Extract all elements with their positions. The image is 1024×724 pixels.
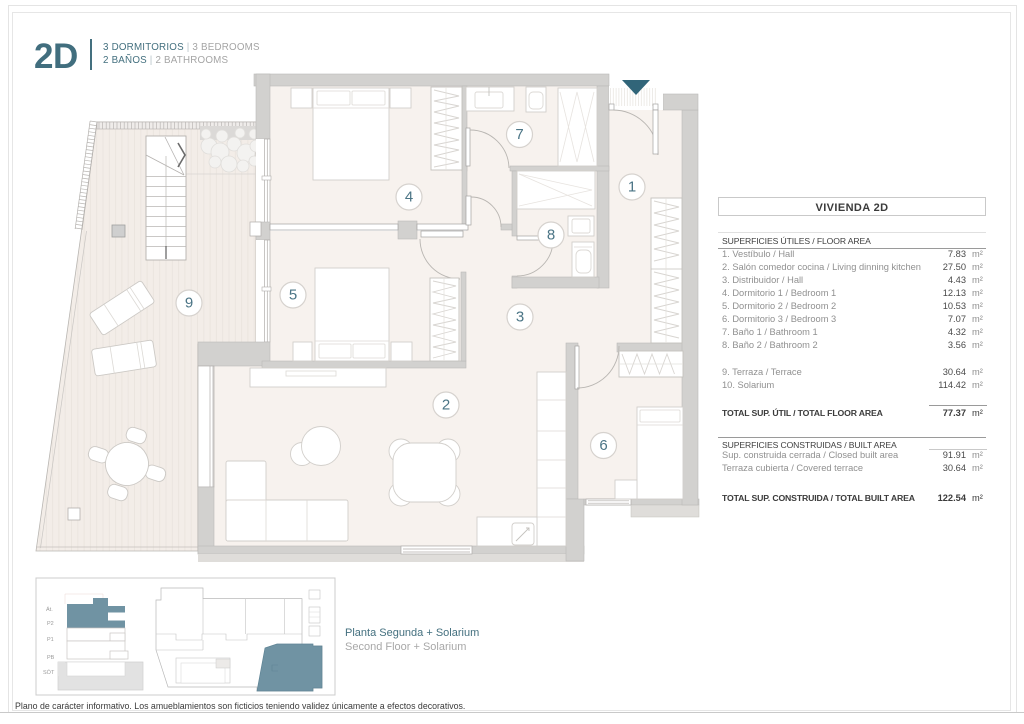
svg-text:PB: PB [47, 655, 55, 661]
svg-text:SÓT: SÓT [43, 669, 55, 676]
svg-text:8: 8 [547, 227, 555, 244]
svg-text:P1: P1 [47, 637, 54, 643]
svg-text:6: 6 [599, 437, 607, 454]
svg-text:9: 9 [185, 295, 193, 312]
svg-text:4: 4 [405, 189, 413, 206]
svg-text:P2: P2 [47, 621, 54, 627]
svg-text:Át.: Át. [46, 606, 53, 613]
svg-text:2: 2 [442, 397, 450, 414]
svg-text:1: 1 [628, 179, 636, 196]
svg-text:3: 3 [516, 309, 524, 326]
svg-text:5: 5 [289, 287, 297, 304]
svg-text:7: 7 [515, 126, 523, 143]
